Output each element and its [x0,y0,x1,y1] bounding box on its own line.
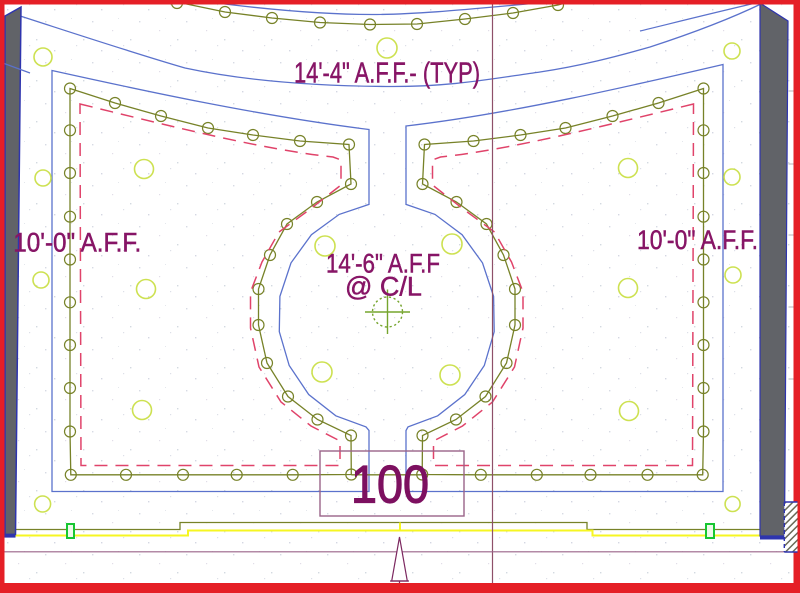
svg-text:10'-0" A.F.F.: 10'-0" A.F.F. [13,228,141,258]
svg-text:100: 100 [351,456,429,515]
svg-text:14'-4" A.F.F.- (TYP): 14'-4" A.F.F.- (TYP) [294,58,480,90]
svg-text:@ C/L: @ C/L [345,272,422,302]
svg-text:10'-0" A.F.F.: 10'-0" A.F.F. [637,225,758,255]
